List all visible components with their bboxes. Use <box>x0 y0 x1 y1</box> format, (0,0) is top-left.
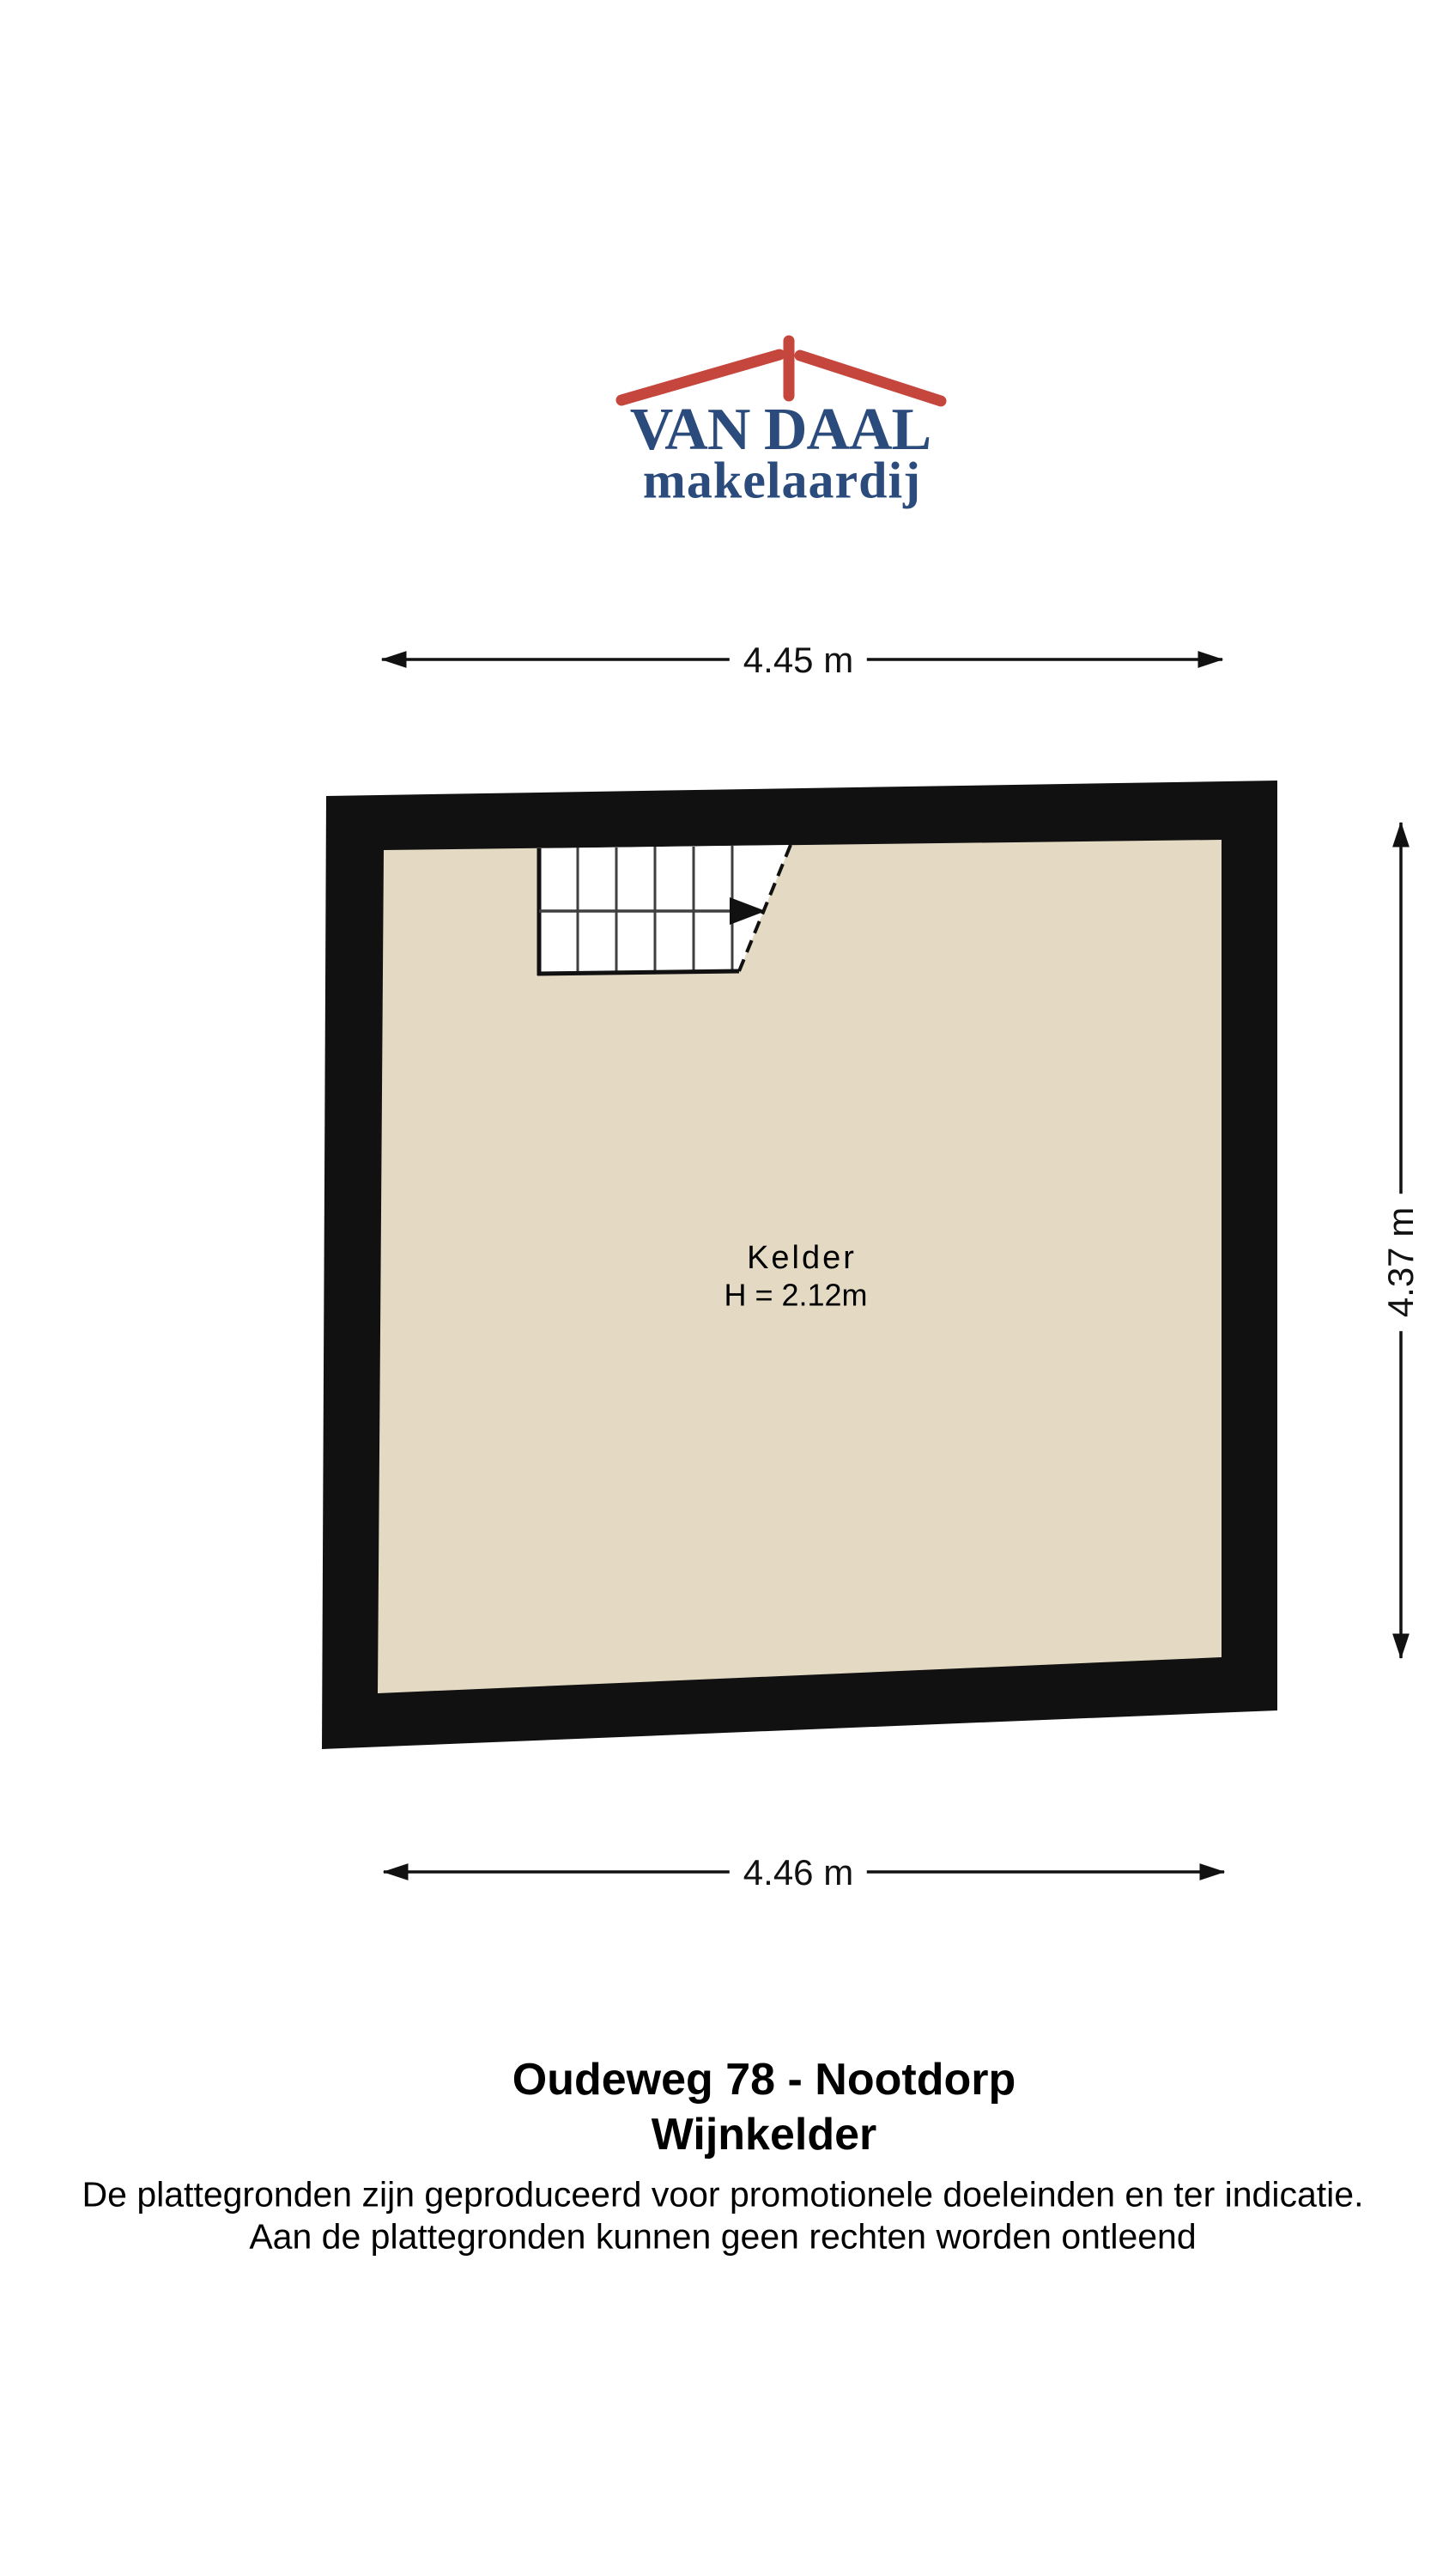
dimension-label-width-bottom: 4.46 m <box>730 1852 867 1893</box>
dimension-label-height-right: 4.37 m <box>1380 1194 1422 1331</box>
logo-tagline: makelaardij <box>643 452 921 511</box>
logo-roof-icon <box>621 341 941 401</box>
floorplan-page: VAN DAAL makelaardij 4.45 m 4.37 m 4.46 … <box>0 0 1449 2576</box>
floor-title: Wijnkelder <box>652 2110 877 2161</box>
dimension-label-width-top: 4.45 m <box>730 640 867 681</box>
room-ceiling-height: H = 2.12m <box>724 1277 867 1312</box>
room-label: Kelder <box>747 1240 857 1278</box>
disclaimer-line-2: Aan de plattegronden kunnen geen rechten… <box>249 2216 1196 2257</box>
disclaimer-line-1: De plattegronden zijn geproduceerd voor … <box>82 2174 1364 2215</box>
address-title: Oudeweg 78 - Nootdorp <box>512 2055 1016 2106</box>
